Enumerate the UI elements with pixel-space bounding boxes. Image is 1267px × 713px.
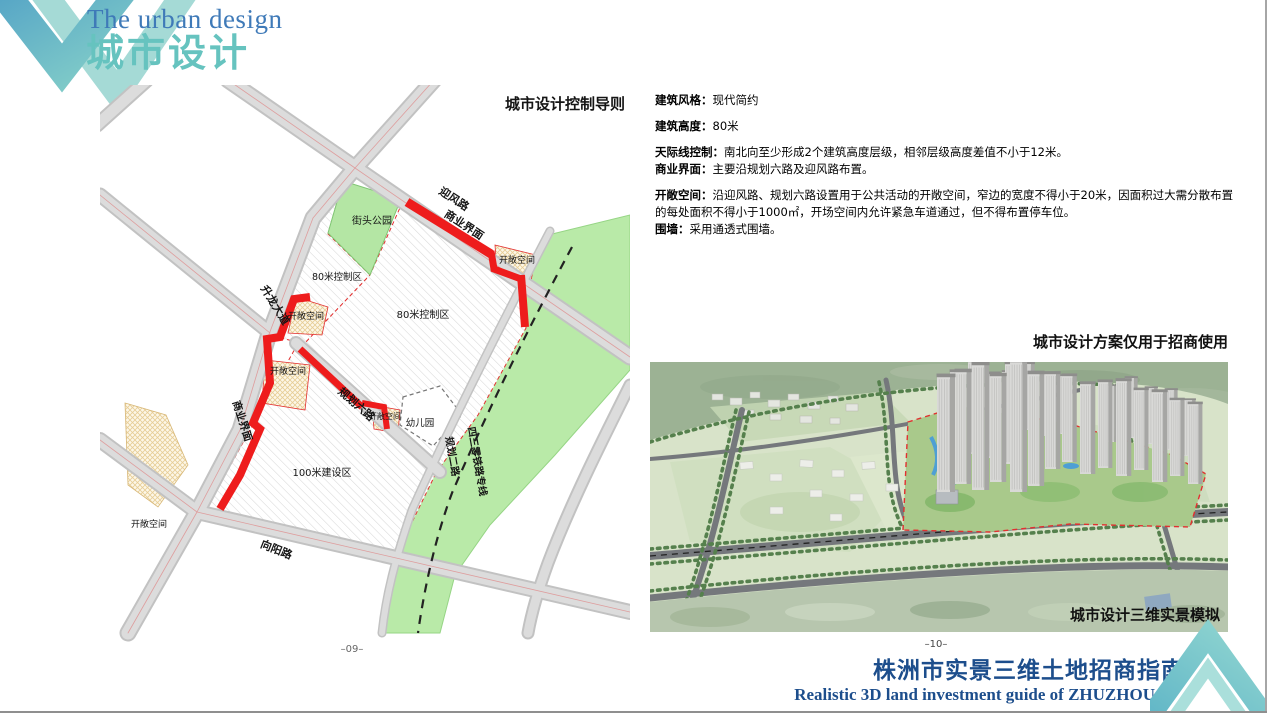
render-3d-image: 城市设计三维实景模拟 (650, 362, 1228, 632)
design-spec-text: 建筑风格：现代简约 建筑高度：80米 天际线控制：南北向至少形成2个建筑高度层级… (655, 92, 1240, 238)
spec-commercial-value: 主要沿规划六路及迎风路布置。 (713, 162, 874, 176)
spec-wall-value: 采用通透式围墙。 (690, 222, 782, 236)
spec-wall-label: 围墙： (655, 222, 690, 236)
control-map-svg: 城市设计控制导则 迎风路 商业界面 街头公园 开敞空间 80米控制区 80米控制… (100, 85, 630, 645)
spec-style-label: 建筑风格： (655, 93, 713, 107)
label-street-park: 街头公园 (352, 214, 392, 227)
spec-height-value: 80米 (713, 119, 739, 133)
spec-open-space: 开敞空间：沿迎风路、规划六路设置用于公共活动的开敞空间，窄边的宽度不得小于20米… (655, 187, 1240, 221)
label-zone80-west: 80米控制区 (312, 271, 363, 283)
spec-commercial-label: 商业界面： (655, 162, 713, 176)
footer-chevron-decoration (1150, 616, 1267, 713)
label-open-space-w2: 开敞空间 (270, 365, 306, 377)
page-number-right: –10– (916, 639, 956, 650)
spec-open-space-label: 开敞空间： (655, 188, 713, 202)
label-open-space-sw: 开敞空间 (131, 518, 167, 530)
label-zone100: 100米建设区 (292, 466, 351, 479)
label-zone80-east: 80米控制区 (397, 308, 450, 321)
label-kindergarten: 幼儿园 (406, 417, 435, 429)
footer-title-zh: 株洲市实景三维土地招商指南 (873, 651, 1185, 685)
spec-skyline-label: 天际线控制： (655, 145, 724, 159)
spec-commercial: 商业界面：主要沿规划六路及迎风路布置。 (655, 161, 1240, 178)
road-label-yingfeng: 迎风路 (437, 184, 473, 214)
page-number-left: –09– (326, 644, 378, 655)
render-3d-svg: 城市设计三维实景模拟 (650, 362, 1228, 632)
spec-height-label: 建筑高度： (655, 119, 713, 133)
label-open-space-mid: 开敞空间 (369, 411, 401, 421)
spec-height: 建筑高度：80米 (655, 118, 1240, 135)
render-title: 城市设计方案仅用于招商使用 (650, 331, 1228, 352)
spec-style: 建筑风格：现代简约 (655, 92, 1240, 109)
pool-2 (1063, 463, 1079, 469)
spec-skyline: 天际线控制：南北向至少形成2个建筑高度层级，相邻层级高度差值不小于12米。 (655, 144, 1240, 161)
header-subtitle-en: The urban design (87, 4, 282, 35)
spec-style-value: 现代简约 (713, 93, 759, 107)
podium-building (936, 490, 958, 504)
spec-open-space-value: 沿迎风路、规划六路设置用于公共活动的开敞空间，窄边的宽度不得小于20米，因面积过… (655, 188, 1233, 219)
label-open-space-w: 开敞空间 (288, 310, 324, 322)
footer-title-en: Realistic 3D land investment guide of ZH… (794, 685, 1155, 705)
spec-wall: 围墙：采用通透式围墙。 (655, 221, 1240, 238)
spec-skyline-value: 南北向至少形成2个建筑高度层级，相邻层级高度差值不小于12米。 (724, 145, 1068, 159)
label-open-space-ne: 开敞空间 (499, 254, 535, 266)
map-title: 城市设计控制导则 (505, 95, 625, 113)
urban-design-control-map: 城市设计控制导则 迎风路 商业界面 街头公园 开敞空间 80米控制区 80米控制… (100, 85, 630, 645)
